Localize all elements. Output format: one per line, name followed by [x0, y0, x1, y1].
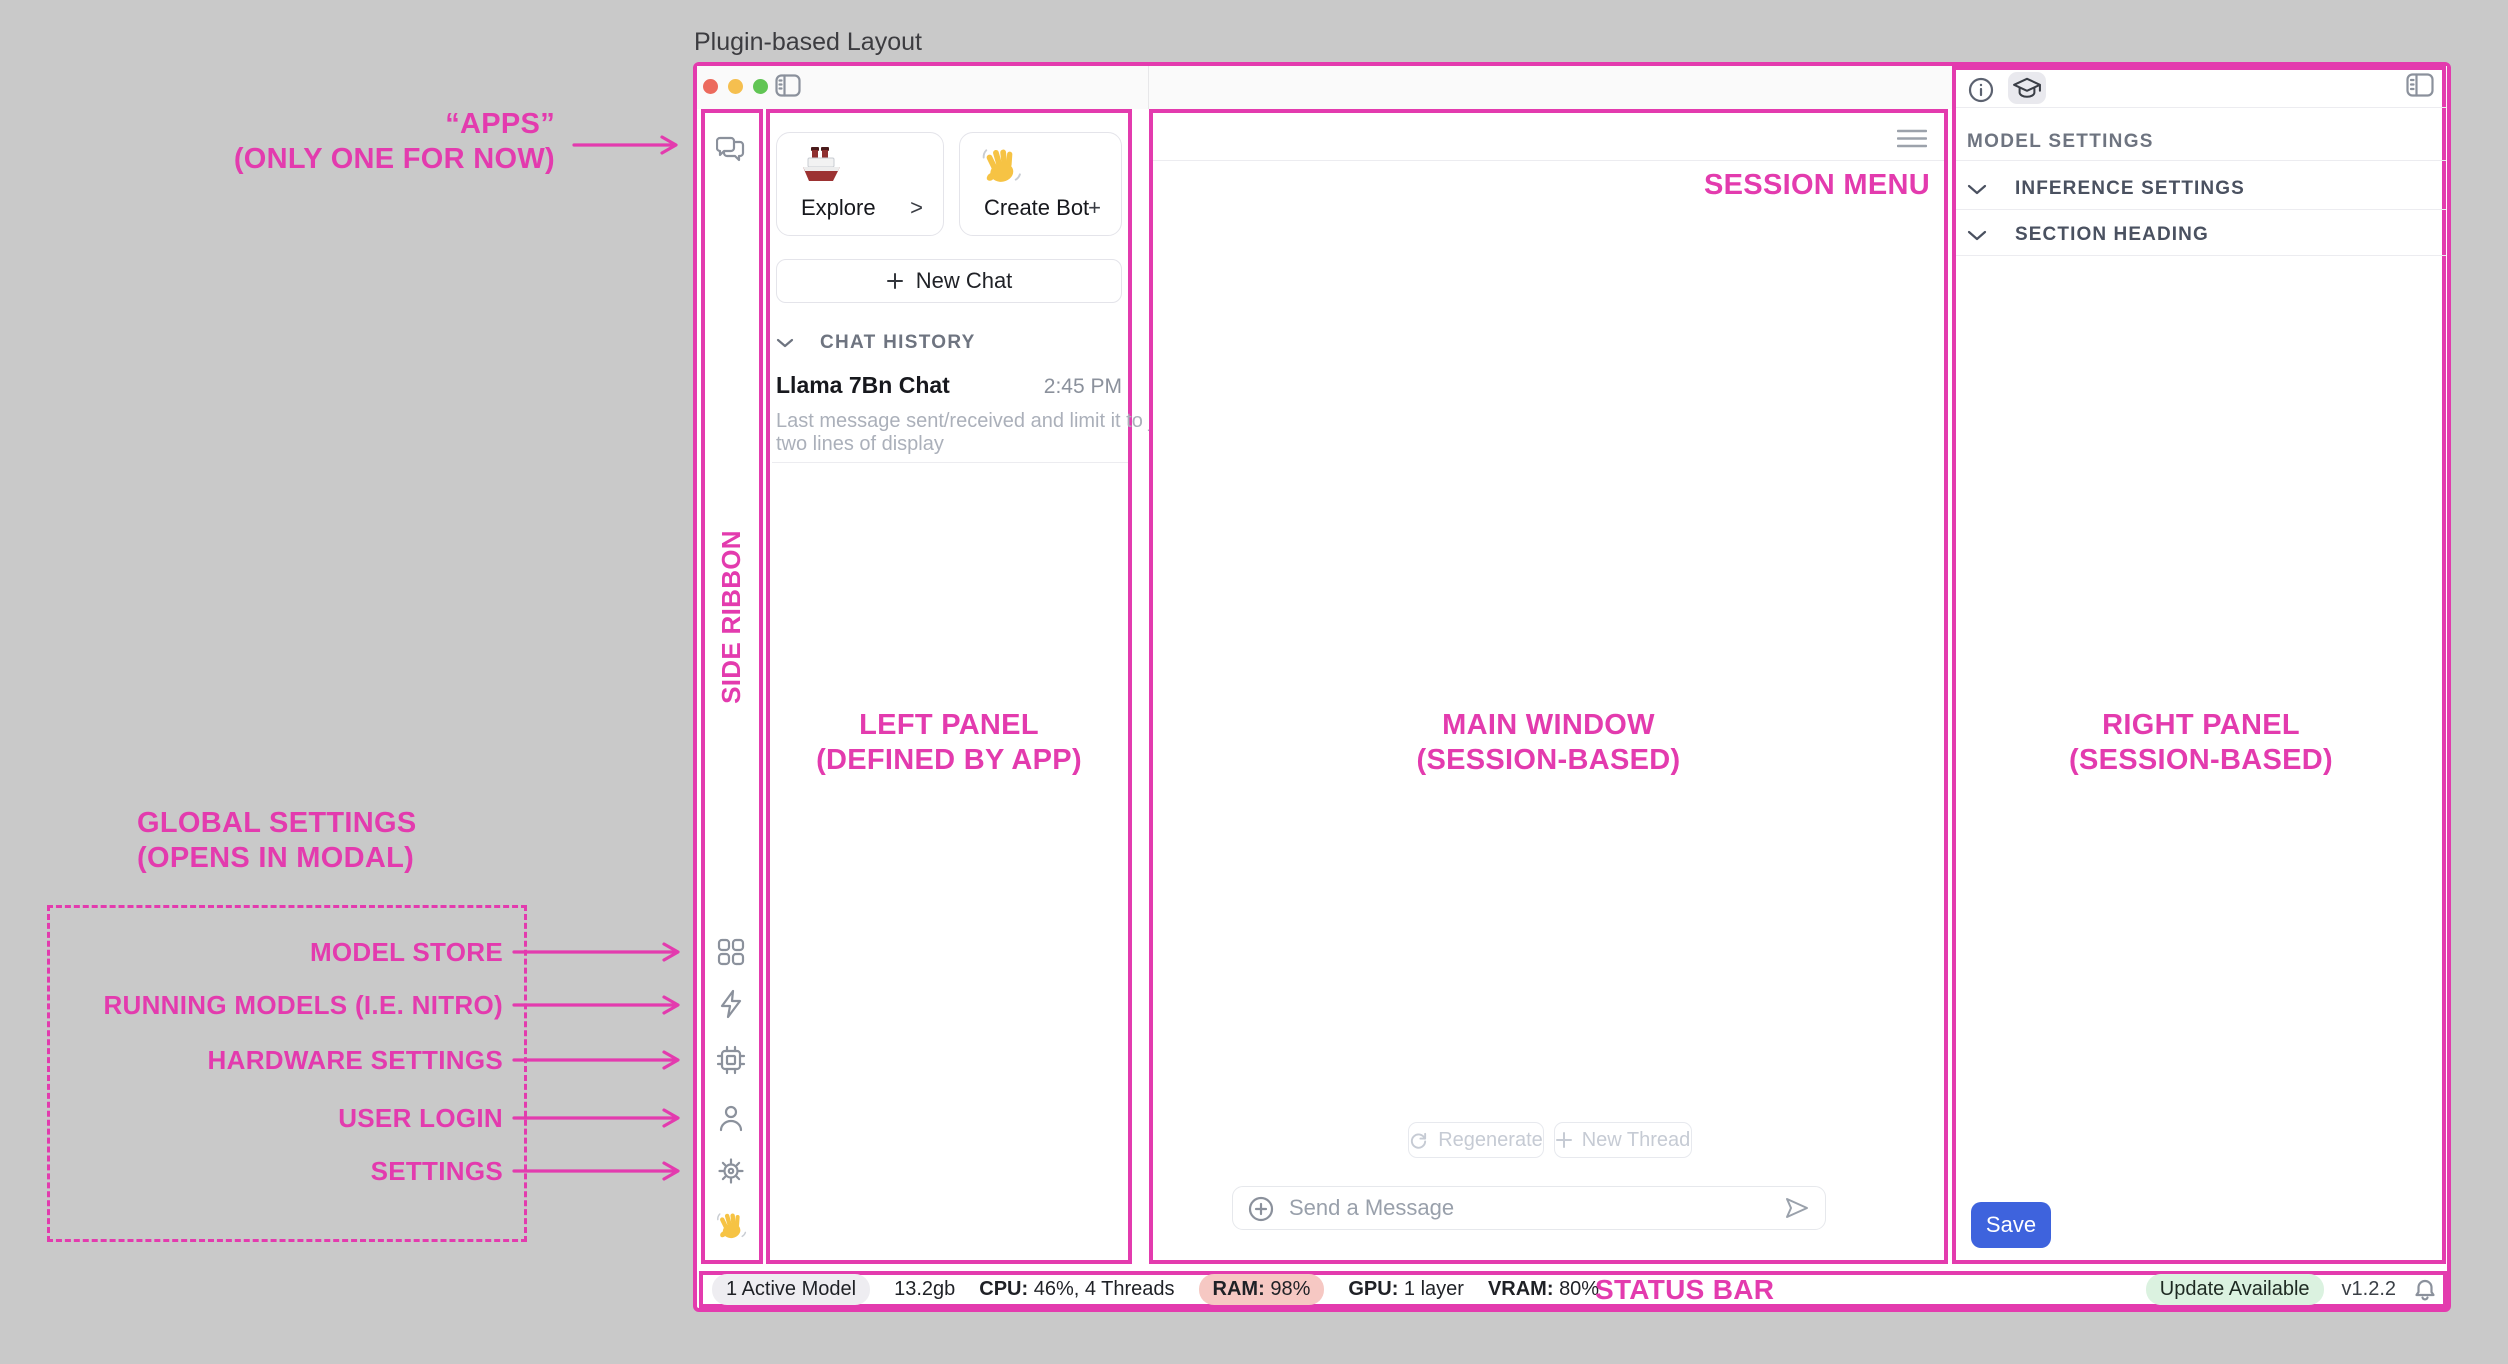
chat-item-preview-line1: Last message sent/received and limit it … [776, 410, 1122, 433]
annotation-settings: SETTINGS [60, 1156, 503, 1186]
chat-history-label: CHAT HISTORY [820, 332, 976, 354]
regenerate-button[interactable]: Regenerate [1408, 1122, 1544, 1158]
close-window-button[interactable] [703, 79, 718, 94]
annotation-status-bar: STATUS BAR [1595, 1274, 1774, 1306]
main-header-divider [1153, 160, 1944, 161]
annotation-running-models: RUNNING MODELS (I.E. NITRO) [60, 990, 503, 1020]
refresh-icon [1409, 1131, 1428, 1150]
new-thread-label: New Thread [1582, 1129, 1691, 1152]
annotation-arrow-settings [512, 1159, 692, 1183]
right-header-divider [1956, 107, 2446, 108]
annotation-hardware-settings: HARDWARE SETTINGS [60, 1045, 503, 1075]
new-chat-label: New Chat [916, 268, 1013, 294]
design-canvas: Plugin-based Layout [0, 0, 2508, 1364]
chat-item-time: 2:45 PM [1044, 375, 1122, 399]
new-thread-button[interactable]: New Thread [1554, 1122, 1692, 1158]
active-model-badge: 1 Active Model [712, 1274, 870, 1305]
inference-settings-label: INFERENCE SETTINGS [2015, 178, 2245, 200]
annotation-right-panel: RIGHT PANEL (SESSION-BASED) [1952, 708, 2450, 778]
chevron-down-icon [776, 338, 794, 348]
gpu-usage: GPU: 1 layer [1348, 1278, 1464, 1301]
section-heading-label: SECTION HEADING [2015, 224, 2209, 246]
annotation-arrow-user-login [512, 1106, 692, 1130]
zoom-window-button[interactable] [753, 79, 768, 94]
update-available-badge[interactable]: Update Available [2146, 1274, 2324, 1305]
vram-usage: VRAM: 80% [1488, 1278, 1599, 1301]
traffic-lights [703, 79, 768, 94]
send-icon[interactable] [1784, 1197, 1810, 1219]
attach-plus-icon[interactable] [1248, 1196, 1274, 1222]
chat-item-divider [772, 462, 1128, 463]
message-composer [1232, 1186, 1826, 1230]
lightning-icon[interactable] [717, 989, 745, 1019]
titlebar-divider [1148, 66, 1149, 109]
inference-settings-row[interactable]: INFERENCE SETTINGS [1967, 178, 2245, 200]
annotation-model-store: MODEL STORE [60, 937, 503, 967]
wave-emoji [980, 145, 1022, 187]
main-window [1149, 109, 1948, 1264]
explore-label: Explore [801, 195, 876, 221]
annotation-user-login: USER LOGIN [60, 1103, 503, 1133]
gear-icon[interactable] [716, 1156, 746, 1186]
grid-icon[interactable] [716, 937, 746, 967]
chip-icon[interactable] [716, 1045, 746, 1075]
model-settings-tab[interactable] [2008, 72, 2046, 104]
minimize-window-button[interactable] [728, 79, 743, 94]
right-sidebar-toggle-icon[interactable] [2406, 73, 2434, 97]
chat-item-preview-line2: two lines of display [776, 433, 1122, 456]
app-version: v1.2.2 [2342, 1278, 2396, 1301]
info-tab-icon[interactable] [1968, 77, 1994, 103]
chat-history-header[interactable]: CHAT HISTORY [776, 332, 976, 354]
create-bot-label: Create Bot [984, 195, 1089, 221]
new-chat-button[interactable]: New Chat [776, 259, 1122, 303]
wave-emoji[interactable] [715, 1210, 747, 1242]
annotation-left-panel: LEFT PANEL (DEFINED BY APP) [766, 708, 1132, 778]
annotation-arrow-running-models [512, 993, 692, 1017]
annotation-arrow-apps [572, 133, 690, 157]
annotation-apps: “APPS” (ONLY ONE FOR NOW) [180, 107, 555, 177]
plus-icon [1556, 1132, 1572, 1148]
chat-bubbles-icon[interactable] [716, 136, 746, 164]
graduation-cap-icon [2011, 76, 2043, 100]
right-divider [1956, 160, 2446, 161]
right-divider [1956, 209, 2446, 210]
status-right: Update Available v1.2.2 [2146, 1271, 2436, 1308]
chat-item-title: Llama 7Bn Chat [776, 372, 950, 399]
section-heading-row[interactable]: SECTION HEADING [1967, 224, 2209, 246]
status-metrics: 1 Active Model 13.2gb CPU: 46%, 4 Thread… [712, 1271, 1599, 1308]
notifications-bell-icon[interactable] [2414, 1278, 2436, 1302]
save-button[interactable]: Save [1971, 1202, 2051, 1248]
annotation-side-ribbon: SIDE RIBBON [716, 517, 746, 717]
session-menu-icon[interactable] [1897, 129, 1927, 148]
annotation-arrow-hardware-settings [512, 1048, 692, 1072]
left-sidebar-toggle-icon[interactable] [775, 74, 801, 97]
chevron-down-icon [1967, 230, 1987, 241]
annotation-session-menu: SESSION MENU [1630, 168, 1930, 203]
right-divider [1956, 255, 2446, 256]
explore-card[interactable]: Explore > [776, 132, 944, 236]
explore-chevron: > [910, 195, 923, 221]
create-bot-card[interactable]: Create Bot + [959, 132, 1122, 236]
ship-emoji [799, 145, 843, 189]
annotation-arrow-model-store [512, 940, 692, 964]
chat-list-item[interactable]: Llama 7Bn Chat 2:45 PM Last message sent… [776, 372, 1122, 456]
regenerate-label: Regenerate [1438, 1129, 1543, 1152]
create-bot-plus: + [1088, 195, 1101, 221]
page-title: Plugin-based Layout [694, 28, 922, 57]
chevron-down-icon [1967, 184, 1987, 195]
plus-icon [886, 272, 904, 290]
user-icon[interactable] [716, 1103, 746, 1133]
annotation-main-window: MAIN WINDOW (SESSION-BASED) [1149, 708, 1948, 778]
ram-usage-badge: RAM: 98% [1199, 1274, 1325, 1305]
memory-usage: 13.2gb [894, 1278, 955, 1301]
message-input[interactable] [1232, 1186, 1826, 1230]
annotation-global-settings: GLOBAL SETTINGS (OPENS IN MODAL) [137, 806, 416, 876]
model-settings-title: MODEL SETTINGS [1967, 131, 2154, 153]
cpu-usage: CPU: 46%, 4 Threads [979, 1278, 1174, 1301]
